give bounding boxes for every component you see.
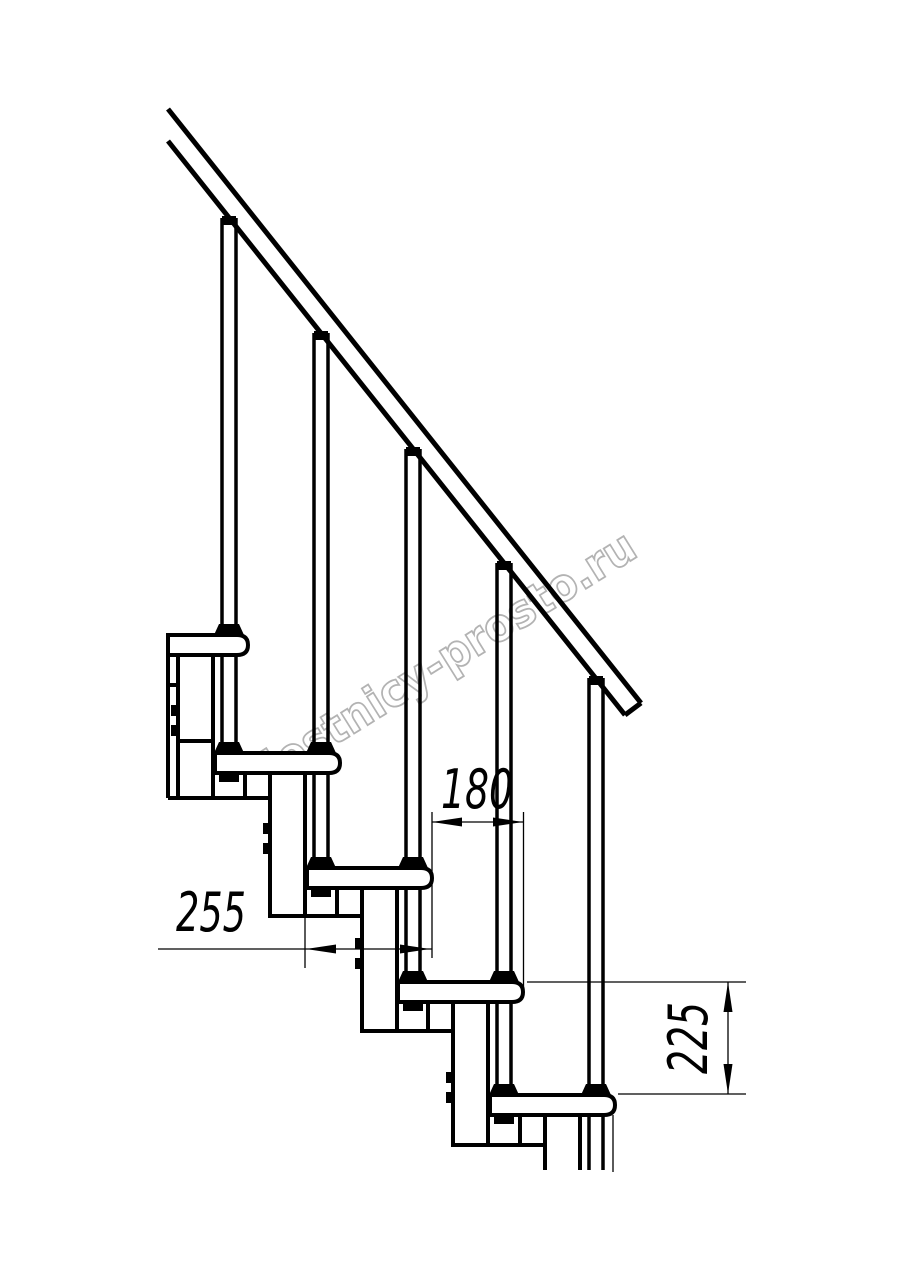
baluster-2 <box>306 331 336 897</box>
clamp-bolt <box>355 958 363 969</box>
arrowhead-left <box>306 945 336 954</box>
clamp-bolt <box>171 705 179 716</box>
tread-2 <box>215 753 340 773</box>
clamp-bolt <box>446 1072 454 1083</box>
clamp-bolt <box>355 938 363 949</box>
clamp-bolt <box>446 1092 454 1103</box>
module-column <box>270 773 305 916</box>
tread-1 <box>168 635 248 655</box>
dimension-label-180: 180 <box>441 758 513 821</box>
handrail-end-cap <box>625 703 641 715</box>
tread-3 <box>307 868 432 888</box>
tread-4 <box>398 982 523 1002</box>
support-module-2 <box>245 773 362 916</box>
dimension-225: 225 <box>527 982 746 1094</box>
dimension-label-255: 255 <box>176 881 246 944</box>
arrowhead-down <box>724 1064 733 1094</box>
clamp-bolt <box>263 823 271 834</box>
technical-drawing-canvas: lestnicy-prosto.ru <box>0 0 914 1280</box>
clamp-bolt <box>263 843 271 854</box>
module-column <box>362 888 397 1031</box>
support-module-5 <box>520 1115 580 1170</box>
baluster-1 <box>214 216 244 782</box>
clamp-bolt <box>171 725 179 736</box>
rod <box>222 218 236 753</box>
arrowhead-up <box>724 982 733 1012</box>
support-module-4 <box>428 1002 545 1145</box>
rod <box>314 333 328 868</box>
stair-drawing-page: lestnicy-prosto.ru <box>0 0 914 1280</box>
baluster-3 <box>398 447 428 1011</box>
module-column <box>178 655 213 798</box>
arrowhead-right <box>400 945 430 954</box>
module-column <box>453 1002 488 1145</box>
dimension-label-225: 225 <box>657 1002 720 1074</box>
tread-5 <box>490 1095 615 1115</box>
support-module-3 <box>337 888 453 1031</box>
rod <box>406 449 420 982</box>
module-column-cut <box>545 1115 580 1170</box>
